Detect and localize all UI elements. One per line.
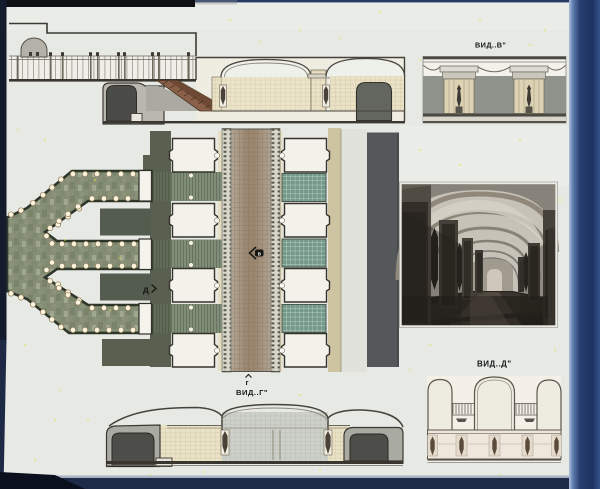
svg-text:ВИД..В": ВИД..В" [475, 41, 506, 50]
svg-text:ВИД..Г": ВИД..Г" [236, 388, 268, 397]
svg-text:ВИД..Д": ВИД..Д" [477, 360, 512, 369]
svg-text:г: г [246, 378, 249, 387]
svg-text:д: д [143, 285, 149, 295]
